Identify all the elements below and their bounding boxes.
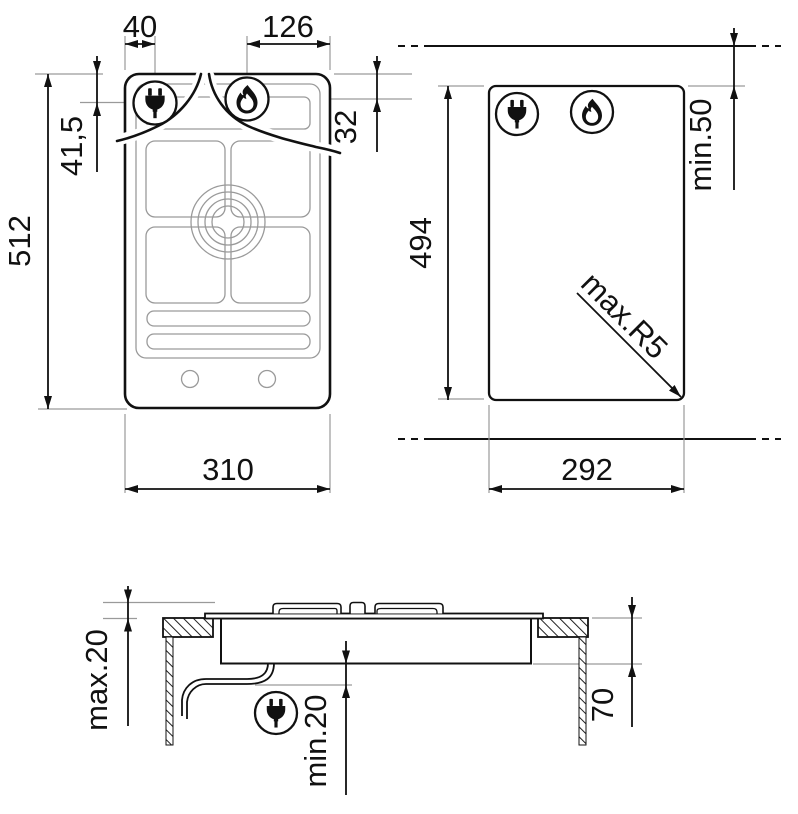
gas-flame-icon bbox=[226, 78, 269, 121]
pan-support-profile bbox=[273, 603, 443, 614]
gas-flame-icon bbox=[571, 91, 613, 133]
dim-flame-offset-x: 126 bbox=[262, 9, 314, 44]
dim-cutout-width: 292 bbox=[561, 452, 613, 487]
power-plug-icon bbox=[134, 82, 177, 125]
dim-protrusion: max.20 bbox=[79, 629, 114, 731]
dim-flame-offset-y: 32 bbox=[328, 110, 363, 144]
section-view: max.20 min.20 70 bbox=[79, 586, 642, 795]
dim-plug-offset-y: 41,5 bbox=[54, 116, 89, 176]
dim-cutout-height: 494 bbox=[403, 217, 438, 269]
dim-overall-width: 310 bbox=[202, 452, 254, 487]
cutout-view: 494 min.50 max.R5 292 bbox=[398, 28, 781, 493]
hob-section bbox=[205, 603, 543, 664]
dim-clearance-below: min.20 bbox=[298, 694, 333, 787]
dim-overall-height: 512 bbox=[2, 215, 37, 267]
hob-top-view: 40 126 512 41,5 32 310 bbox=[2, 9, 412, 493]
power-plug-icon bbox=[496, 93, 538, 135]
dim-depth: 70 bbox=[585, 688, 620, 722]
installation-diagram-page: 40 126 512 41,5 32 310 bbox=[0, 0, 798, 814]
dim-corner-radius: max.R5 bbox=[574, 265, 674, 365]
power-plug-icon bbox=[255, 692, 297, 734]
installation-diagram: 40 126 512 41,5 32 310 bbox=[0, 0, 798, 814]
dim-rear-clearance: min.50 bbox=[683, 98, 718, 191]
dim-plug-offset-x: 40 bbox=[123, 9, 157, 44]
